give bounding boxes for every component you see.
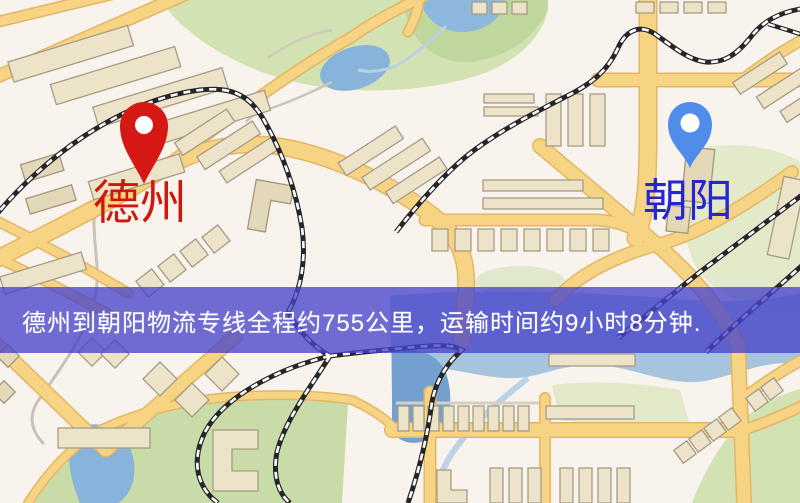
logistics-map: 德州 朝阳 德州到朝阳物流专线全程约755公里，运输时间约9小时8分钟. — [0, 0, 800, 503]
route-info-text: 德州到朝阳物流专线全程约755公里，运输时间约9小时8分钟. — [22, 303, 701, 338]
origin-label: 德州 — [93, 178, 187, 230]
destination-label: 朝阳 — [643, 176, 733, 226]
route-info-banner: 德州到朝阳物流专线全程约755公里，运输时间约9小时8分钟. — [0, 287, 800, 353]
map-canvas: 德州 朝阳 — [0, 0, 800, 503]
